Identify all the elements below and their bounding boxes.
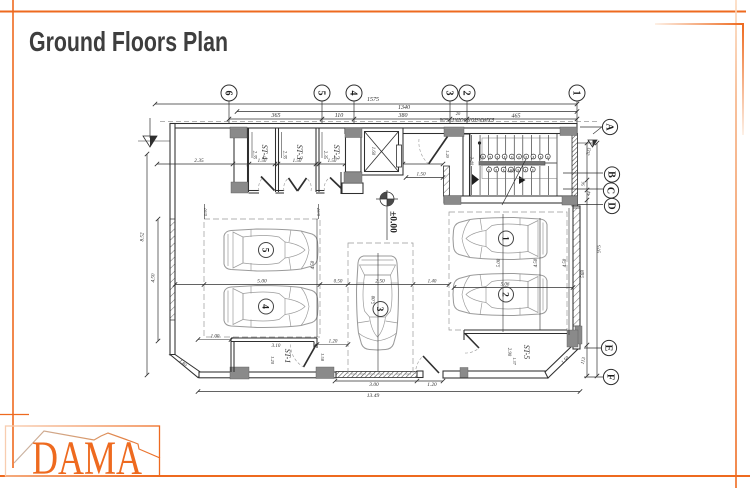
svg-text:1.60: 1.60	[370, 147, 375, 156]
svg-text:1: 1	[500, 236, 510, 241]
svg-text:C: C	[605, 187, 616, 194]
svg-text:4.60: 4.60	[507, 169, 516, 174]
svg-text:1.20: 1.20	[270, 356, 275, 365]
svg-text:D: D	[606, 202, 617, 209]
svg-text:2: 2	[500, 292, 510, 297]
svg-text:1.20: 1.20	[445, 150, 450, 158]
svg-text:4: 4	[348, 91, 359, 96]
svg-text:568: 568	[580, 270, 586, 278]
svg-text:5: 5	[260, 248, 270, 253]
svg-text:2.35: 2.35	[322, 151, 327, 160]
svg-text:2.35: 2.35	[194, 158, 204, 164]
svg-text:3.10: 3.10	[272, 344, 281, 349]
svg-text:ST-2: ST-2	[332, 145, 341, 160]
svg-text:380: 380	[398, 113, 408, 119]
svg-text:20: 20	[456, 111, 461, 116]
svg-text:1.00: 1.00	[211, 335, 220, 340]
svg-text:F: F	[605, 374, 616, 380]
svg-text:DAMA: DAMA	[32, 432, 142, 485]
svg-text:4.50: 4.50	[563, 258, 568, 267]
svg-text:975: 975	[597, 245, 603, 253]
svg-text:1.58: 1.58	[320, 353, 325, 362]
svg-text:1.20: 1.20	[329, 340, 338, 345]
svg-text:0.97: 0.97	[203, 207, 208, 216]
svg-text:2.40: 2.40	[468, 157, 473, 166]
svg-text:1.50: 1.50	[328, 159, 337, 164]
svg-text:1575: 1575	[367, 97, 379, 103]
svg-text:5.06: 5.06	[501, 283, 510, 288]
svg-text:5.00: 5.00	[257, 279, 267, 285]
svg-text:B: B	[606, 171, 617, 178]
svg-text:110: 110	[335, 113, 344, 119]
svg-text:ST-1: ST-1	[283, 349, 292, 364]
svg-text:8.52: 8.52	[140, 232, 146, 241]
svg-text:A: A	[604, 123, 615, 131]
svg-text:5: 5	[316, 91, 327, 96]
svg-text:E: E	[603, 345, 614, 352]
svg-text:1.50: 1.50	[293, 159, 302, 164]
svg-text:5.00: 5.00	[372, 295, 377, 304]
svg-text:1.37: 1.37	[512, 357, 517, 365]
svg-text:6: 6	[223, 91, 234, 96]
svg-text:3: 3	[444, 91, 455, 96]
svg-text:365: 365	[271, 113, 281, 119]
svg-text:1: 1	[571, 91, 582, 96]
svg-text:2.50: 2.50	[375, 279, 385, 285]
svg-text:1.40: 1.40	[428, 280, 437, 285]
svg-text:4: 4	[260, 304, 270, 309]
svg-text:465: 465	[512, 113, 521, 120]
svg-text:4.50: 4.50	[150, 273, 157, 282]
svg-text:3: 3	[374, 307, 384, 312]
svg-text:EXPANSION JOINT=5cm: EXPANSION JOINT=5cm	[439, 116, 495, 122]
svg-text:1340: 1340	[398, 104, 410, 111]
svg-text:ST-5: ST-5	[522, 345, 531, 360]
svg-text:0.50: 0.50	[334, 280, 343, 285]
svg-text:Ground Floors Plan: Ground Floors Plan	[29, 26, 228, 57]
svg-text:1.20: 1.20	[427, 382, 437, 388]
svg-text:4.50: 4.50	[311, 260, 316, 269]
svg-text:±0.00: ±0.00	[388, 211, 398, 233]
svg-text:1.50: 1.50	[258, 159, 267, 164]
svg-text:2.90: 2.90	[506, 348, 511, 357]
svg-text:ST-4: ST-4	[260, 145, 269, 160]
svg-text:3.00: 3.00	[368, 382, 379, 388]
svg-text:4.50: 4.50	[534, 258, 539, 267]
svg-text:ST-3: ST-3	[295, 145, 304, 160]
svg-text:13.49: 13.49	[367, 393, 380, 399]
svg-text:56: 56	[581, 181, 586, 186]
svg-text:2: 2	[461, 91, 472, 96]
svg-text:5.00: 5.00	[497, 258, 502, 267]
svg-text:1.50: 1.50	[416, 172, 425, 178]
svg-text:2.35: 2.35	[282, 151, 287, 160]
